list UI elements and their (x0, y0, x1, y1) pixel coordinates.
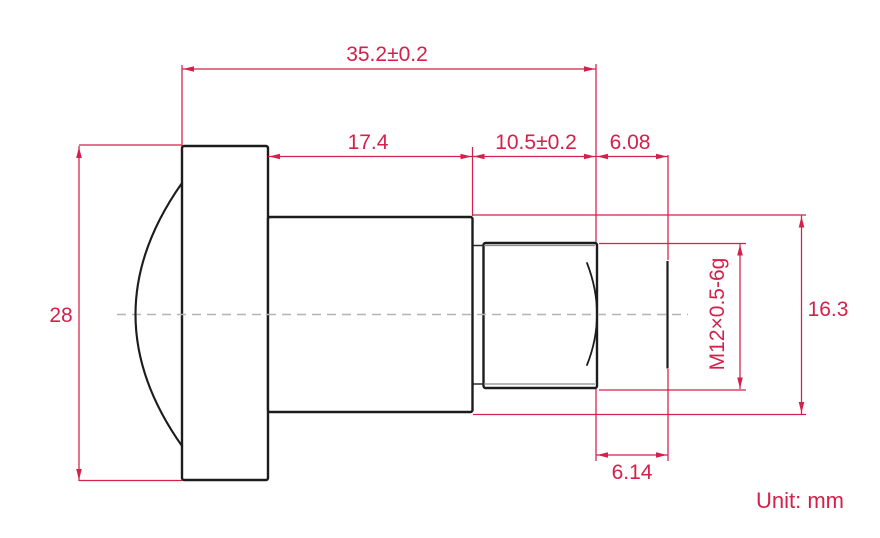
arrowhead-down (76, 469, 82, 480)
arrowhead-up (76, 147, 82, 158)
arrowhead-right (584, 154, 595, 159)
dim-front-diameter-label: 28 (49, 304, 72, 327)
arrowhead-right (584, 66, 595, 71)
dim-thread-length: 10.5±0.2 (473, 131, 597, 159)
dim-thread-length-label: 10.5±0.2 (495, 131, 577, 154)
dim-rear-length-label: 6.14 (612, 461, 653, 484)
dim-overall-length-label: 35.2±0.2 (346, 43, 428, 66)
arrowhead-up (737, 245, 743, 256)
dim-rear-clearance: 6.08 (596, 131, 668, 159)
dim-front-diameter: 28 (49, 146, 81, 481)
unit-note: Unit: mm (756, 488, 844, 513)
arrowhead-up (799, 217, 805, 228)
lens-technical-drawing-page: 35.2±0.2 17.4 10.5±0.2 6.08 28 M12×0.5-6… (0, 0, 880, 538)
dim-barrel-diameter-label: 16.3 (808, 298, 849, 321)
arrowhead-down (799, 402, 805, 413)
arrowhead-right (656, 154, 667, 159)
arrowhead-left (269, 154, 280, 159)
arrowhead-down (737, 378, 743, 389)
dim-body-length: 17.4 (268, 131, 473, 159)
dim-thread-spec: M12×0.5-6g (706, 244, 743, 389)
thread-section-outline (484, 243, 598, 388)
lens-flange-outline (182, 146, 268, 480)
arrowhead-right (461, 154, 472, 159)
arrowhead-left (597, 452, 608, 457)
arrowhead-left (183, 66, 194, 71)
arrowhead-left (474, 154, 485, 159)
arrowhead-left (597, 154, 608, 159)
lens-body-outline (117, 146, 688, 480)
arrowhead-right (656, 452, 667, 457)
dim-rear-length: 6.14 (596, 452, 668, 484)
front-lens-dome-arc (136, 183, 183, 446)
dim-body-length-label: 17.4 (348, 131, 389, 154)
dim-overall-length: 35.2±0.2 (182, 43, 596, 72)
dim-barrel-diameter: 16.3 (799, 216, 849, 415)
dim-rear-clearance-label: 6.08 (610, 131, 651, 154)
dim-thread-spec-label: M12×0.5-6g (706, 258, 729, 371)
lens-technical-drawing: 35.2±0.2 17.4 10.5±0.2 6.08 28 M12×0.5-6… (0, 0, 880, 538)
